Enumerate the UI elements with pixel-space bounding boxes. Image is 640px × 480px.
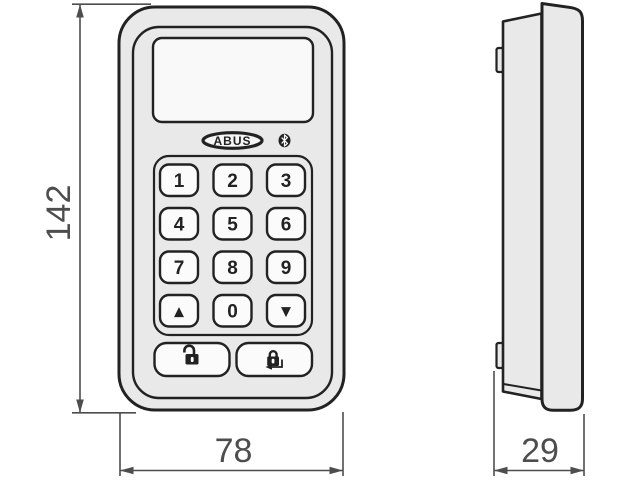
side-view [497, 4, 583, 411]
key-8-label: 8 [227, 258, 238, 279]
front-view: ABUS 1 2 3 4 5 6 7 8 9 [119, 7, 344, 410]
key-2-label: 2 [227, 171, 238, 192]
arrow-head-up [76, 4, 84, 17]
bluetooth-icon [279, 134, 291, 148]
key-3-label: 3 [281, 171, 292, 192]
key-9-label: 9 [281, 258, 292, 279]
arrow-head-left [120, 467, 134, 474]
key-0-label: 0 [227, 302, 238, 323]
arrow-down-icon: ▼ [281, 305, 291, 320]
dimension-width: 78 [120, 412, 343, 476]
keypad-body-profile [542, 4, 583, 411]
display [153, 38, 313, 122]
depth-value: 29 [521, 432, 559, 470]
abus-logo: ABUS [203, 133, 262, 149]
dimensional-drawing: ABUS 1 2 3 4 5 6 7 8 9 [0, 0, 640, 480]
drawing-canvas: ABUS 1 2 3 4 5 6 7 8 9 [0, 0, 640, 480]
wall-plate-profile [503, 14, 542, 400]
arrow-head-right [330, 467, 344, 474]
key-1-label: 1 [174, 171, 185, 192]
arrow-head-left [494, 467, 508, 474]
height-value: 142 [40, 185, 78, 242]
key-4-label: 4 [174, 215, 185, 236]
abus-logo-text: ABUS [213, 134, 251, 148]
arrow-head-right [571, 467, 585, 474]
key-6-label: 6 [281, 215, 292, 236]
arrow-up-icon: ▲ [174, 305, 184, 320]
key-7-label: 7 [174, 258, 185, 279]
arrow-head-down [76, 400, 84, 413]
width-value: 78 [215, 432, 253, 470]
key-5-label: 5 [227, 215, 238, 236]
